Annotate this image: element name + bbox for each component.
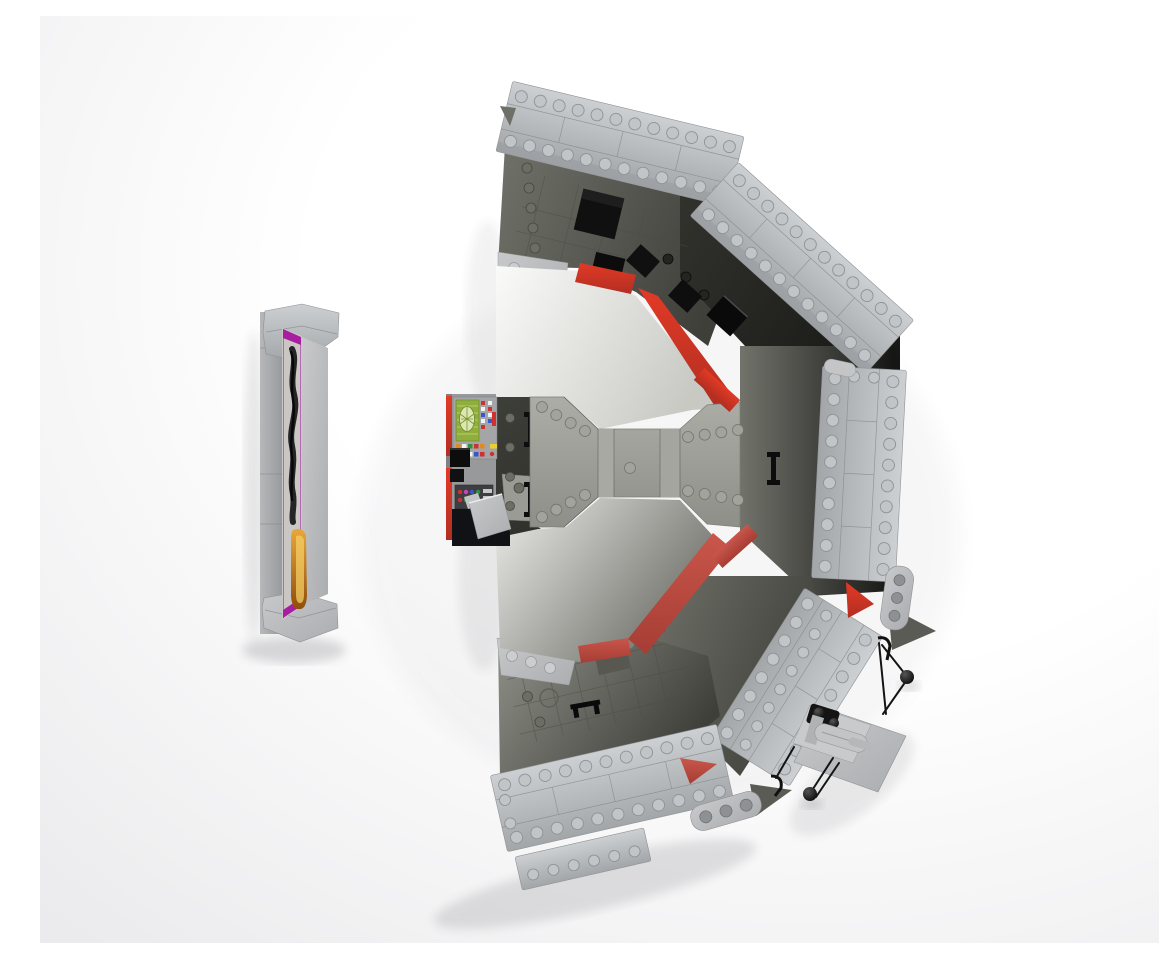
shape [456,444,461,449]
shape [481,413,485,417]
stud [506,472,515,481]
console-black-module-2 [450,469,464,482]
stud [733,495,744,506]
stud [506,443,515,452]
shape [481,407,485,411]
shape [771,455,776,482]
stud [522,163,532,173]
shape [480,444,485,449]
stud [535,717,545,727]
walkway-plate-2 [660,429,680,497]
stud [537,402,548,413]
stud [625,463,636,474]
stud [514,483,524,493]
shape [462,444,467,449]
stud [880,500,893,513]
stud [565,497,576,508]
stud [825,435,838,448]
stud [826,414,839,427]
shape [458,490,462,494]
shape [490,444,497,449]
stud [716,492,727,503]
stud [733,425,744,436]
stud [506,502,515,511]
wall-segment-right: Right studded wall segment [812,366,907,582]
antenna-ball-right [900,670,914,684]
shape [470,490,474,494]
stud [526,657,537,668]
shape [481,401,485,405]
stud [699,489,710,500]
stud [828,393,841,406]
shape [481,425,485,429]
stud [878,542,891,555]
stud [683,486,694,497]
stud [683,432,694,443]
stud [699,290,709,300]
shape [490,452,494,456]
shape [492,412,496,426]
console-black-module [450,448,470,467]
stud [885,396,898,409]
stud [879,521,892,534]
stud [551,410,562,421]
lego-render: Freestanding gray panel with purple-trim… [40,16,1159,943]
shape [488,407,492,411]
shape [488,419,492,423]
artwork-panel: Freestanding gray panel with purple-trim… [260,304,339,642]
stud [883,438,896,451]
stud [551,504,562,515]
stud [565,418,576,429]
walkway-stud-center [625,463,636,474]
shape [480,452,485,457]
stud [580,490,591,501]
stud [824,456,837,469]
shape [242,637,346,663]
stud [530,243,540,253]
stud [868,372,880,384]
shape [468,444,473,449]
stud [545,663,556,674]
stud [526,203,536,213]
stud [823,477,836,490]
antenna-ball-bottom [803,787,817,801]
panel-post [260,312,282,634]
console-red-trim-top [446,396,452,456]
stud [528,223,538,233]
stud [537,512,548,523]
walkway-plate-1 [598,429,614,497]
shape [458,498,462,502]
stud [716,427,727,438]
stud [821,518,834,531]
stud [507,651,518,662]
stud [524,183,534,193]
shape [481,419,485,423]
stud [887,375,900,388]
shape [483,489,492,493]
stud [506,414,515,423]
stud [523,692,533,702]
stud [881,480,894,493]
stud [699,429,710,440]
stud [663,254,673,264]
shape [464,490,468,494]
shape [474,444,479,449]
stud [884,417,897,430]
stud [819,560,832,573]
lego-render-screenshot: Top-down 3D render of a gray LEGO dioram… [40,16,1159,943]
stud [822,497,835,510]
stud [820,539,833,552]
shape [488,401,492,405]
flame-highlight [296,536,304,604]
shape [474,452,479,457]
shape [488,413,492,417]
stud [882,459,895,472]
stud [580,426,591,437]
